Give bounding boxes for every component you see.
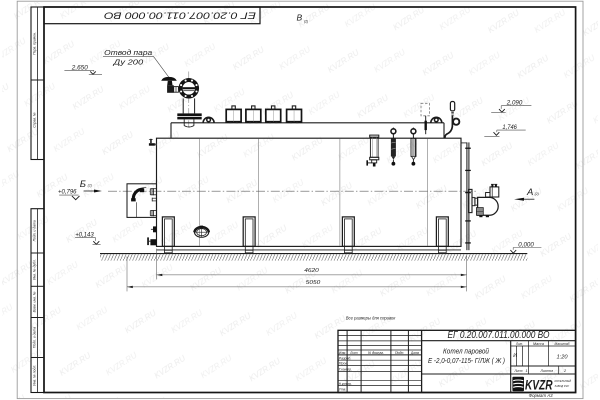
svg-text:Инв. № подл.: Инв. № подл. <box>33 365 37 386</box>
svg-text:Н.контр.: Н.контр. <box>339 382 352 386</box>
svg-text:Справ. №: Справ. № <box>33 112 37 128</box>
svg-text:И: И <box>513 353 517 359</box>
svg-text:Лист: Лист <box>349 351 357 355</box>
svg-text:N докум.: N докум. <box>368 351 384 355</box>
svg-text:Подп. и дата: Подп. и дата <box>33 327 37 348</box>
svg-text:ЗАВОД РЭУ: ЗАВОД РЭУ <box>555 384 570 388</box>
svg-text:1:20: 1:20 <box>557 355 568 361</box>
svg-text:Все размеры для справок: Все размеры для справок <box>346 315 396 320</box>
svg-text:КОТЕЛЬНЫЙ: КОТЕЛЬНЫЙ <box>555 379 572 383</box>
svg-text:Утв.: Утв. <box>339 388 347 392</box>
svg-text:Подп.: Подп. <box>395 351 405 355</box>
svg-text:ЕГ 0.20.007.011.00.000 ВО: ЕГ 0.20.007.011.00.000 ВО <box>104 11 256 21</box>
svg-text:(2): (2) <box>304 19 308 23</box>
svg-text:Лит.: Лит. <box>515 342 523 346</box>
svg-text:5050: 5050 <box>306 280 321 286</box>
svg-text:Формат А3: Формат А3 <box>529 393 554 398</box>
svg-text:1: 1 <box>526 369 528 373</box>
svg-text:Листов: Листов <box>540 369 553 373</box>
svg-text:2,090: 2,090 <box>506 99 523 106</box>
svg-text:ЕГ 0.20.007.011.00.000 ВО: ЕГ 0.20.007.011.00.000 ВО <box>448 329 550 341</box>
svg-text:Масштаб: Масштаб <box>555 342 571 346</box>
svg-text:Разраб.: Разраб. <box>339 356 352 360</box>
svg-text:(2): (2) <box>88 183 92 187</box>
svg-text:Котел паровой: Котел паровой <box>443 347 489 355</box>
svg-text:Подп. и дата: Подп. и дата <box>33 220 37 241</box>
svg-text:Пров.: Пров. <box>339 362 349 366</box>
svg-text:В: В <box>297 13 303 23</box>
svg-text:4620: 4620 <box>304 268 319 274</box>
svg-text:Т.контр.: Т.контр. <box>339 368 352 372</box>
svg-text:А: А <box>526 187 533 198</box>
svg-text:Лист: Лист <box>514 369 523 373</box>
svg-text:Изм.: Изм. <box>339 351 347 355</box>
svg-text:Отвод пара: Отвод пара <box>104 48 152 57</box>
svg-text:Инв. № дубл.: Инв. № дубл. <box>33 259 37 280</box>
svg-text:Перв. примен.: Перв. примен. <box>33 32 37 55</box>
svg-text:Взам. инв. №: Взам. инв. № <box>33 291 37 312</box>
svg-text:(2): (2) <box>535 192 539 196</box>
svg-text:Е -2,0-0,07-115- Г/ЛЖ ( Ж ): Е -2,0-0,07-115- Г/ЛЖ ( Ж ) <box>428 358 505 365</box>
svg-text:+0,796: +0,796 <box>58 188 77 195</box>
svg-text:Дата: Дата <box>410 351 419 355</box>
svg-text:KVZR: KVZR <box>525 377 553 393</box>
svg-text:Масса: Масса <box>533 342 544 346</box>
svg-text:Б: Б <box>80 179 86 190</box>
svg-text:Ду 200: Ду 200 <box>112 57 144 66</box>
svg-text:+0,143: +0,143 <box>75 231 94 238</box>
svg-text:1,746: 1,746 <box>502 124 517 131</box>
